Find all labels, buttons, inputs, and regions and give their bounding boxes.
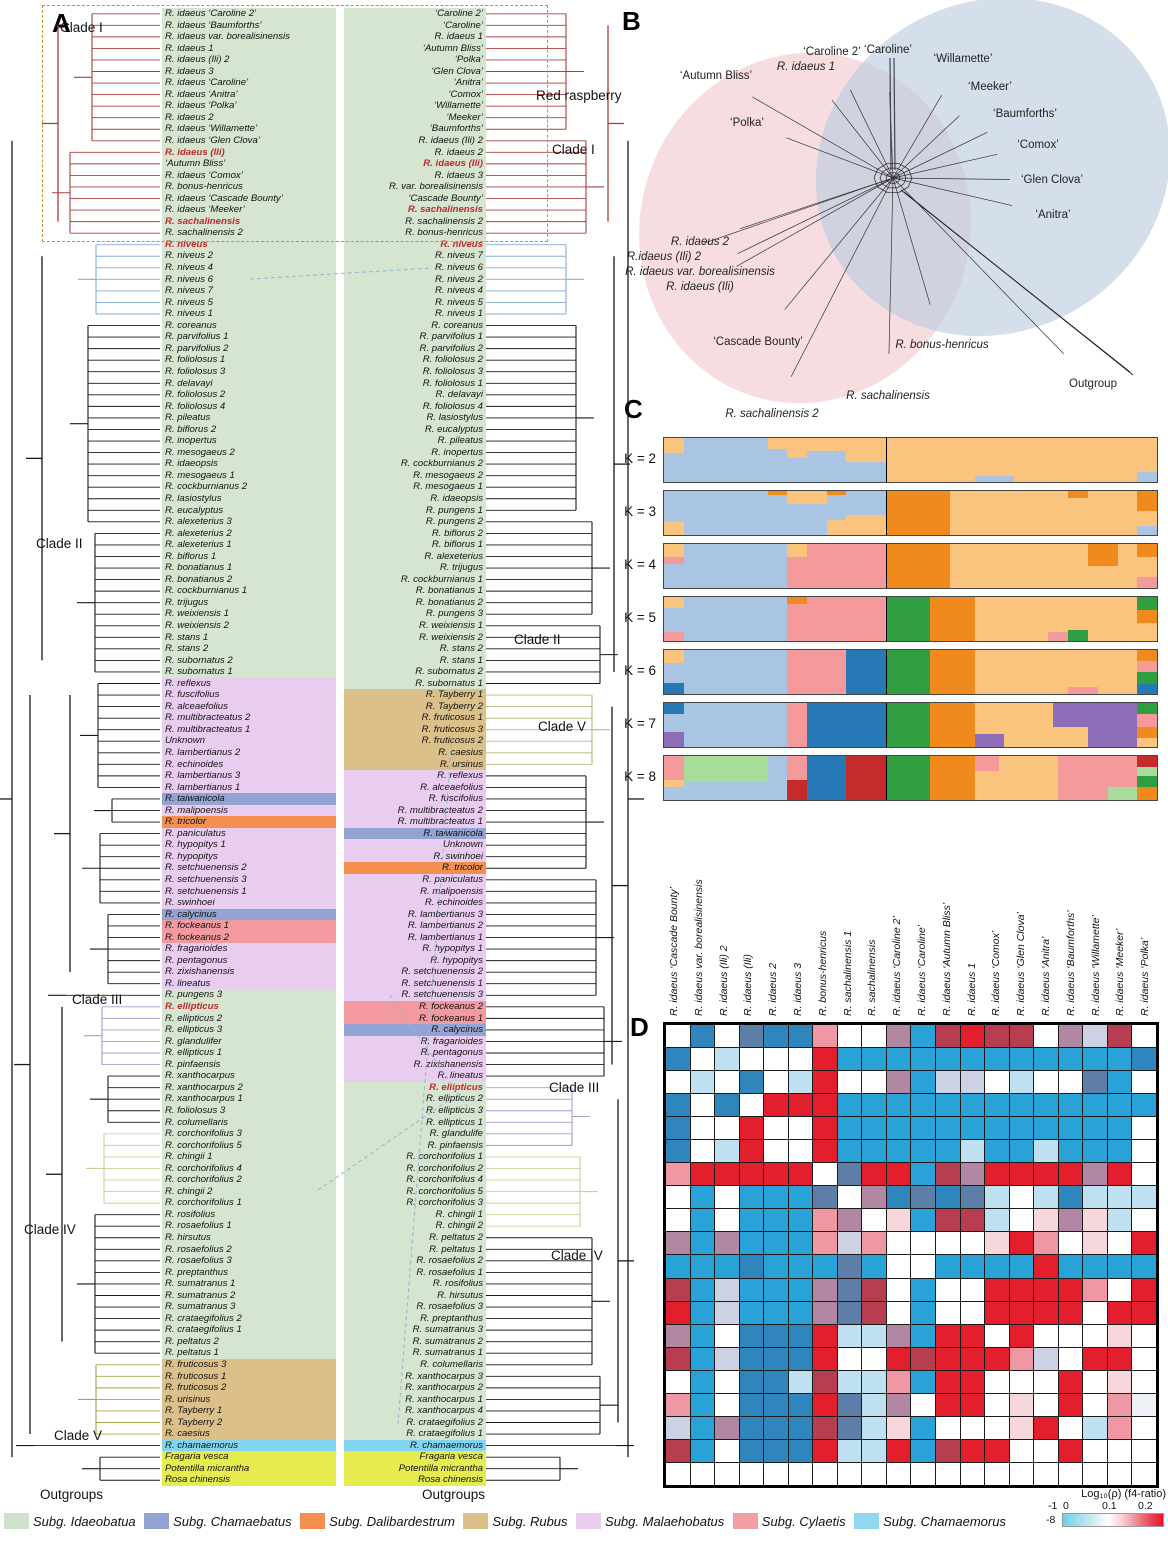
heatmap-cell bbox=[740, 1186, 764, 1208]
heatmap-cell bbox=[862, 1071, 886, 1093]
heatmap-cell bbox=[789, 1302, 813, 1324]
heatmap-cell bbox=[1083, 1048, 1107, 1070]
heatmap-cell bbox=[715, 1440, 739, 1462]
heatmap-cell bbox=[1108, 1255, 1132, 1277]
heatmap-cell bbox=[1034, 1025, 1058, 1047]
structure-segment bbox=[846, 491, 885, 535]
heatmap-cell bbox=[985, 1371, 1009, 1393]
heatmap-cell bbox=[1010, 1325, 1034, 1347]
heatmap-cell bbox=[936, 1348, 960, 1370]
heatmap-cell bbox=[1059, 1232, 1083, 1254]
f4-heatmap bbox=[663, 1022, 1159, 1488]
structure-segment bbox=[664, 544, 684, 588]
heatmap-cell bbox=[1059, 1209, 1083, 1231]
structure-segment bbox=[787, 703, 807, 747]
network-taxon-label: ‘Meeker’ bbox=[968, 81, 1012, 93]
heatmap-cell bbox=[887, 1348, 911, 1370]
structure-segment bbox=[886, 597, 930, 641]
heatmap-cell bbox=[740, 1232, 764, 1254]
heatmap-cell bbox=[1083, 1279, 1107, 1301]
heatmap-cell bbox=[691, 1279, 715, 1301]
heatmap-cell bbox=[1132, 1371, 1156, 1393]
heatmap-cell bbox=[911, 1048, 935, 1070]
heatmap-cell bbox=[1059, 1071, 1083, 1093]
heatmap-cell bbox=[862, 1163, 886, 1185]
heatmap-cell bbox=[1083, 1348, 1107, 1370]
k-label: K = 3 bbox=[604, 504, 656, 519]
heatmap-cell bbox=[789, 1163, 813, 1185]
heatmap-cell bbox=[1010, 1140, 1034, 1162]
heatmap-cell bbox=[961, 1302, 985, 1324]
heatmap-cell bbox=[838, 1371, 862, 1393]
heatmap-cell bbox=[1132, 1348, 1156, 1370]
legend-chip bbox=[300, 1513, 325, 1529]
heatmap-cell bbox=[985, 1463, 1009, 1485]
heatmap-cell bbox=[740, 1417, 764, 1439]
heatmap-cell bbox=[911, 1094, 935, 1116]
clade-label: Clade V bbox=[54, 1428, 102, 1443]
heatmap-cell bbox=[1132, 1302, 1156, 1324]
heatmap-cell bbox=[862, 1094, 886, 1116]
heatmap-cell bbox=[887, 1025, 911, 1047]
heatmap-cell bbox=[1059, 1186, 1083, 1208]
structure-row bbox=[663, 702, 1158, 748]
legend-label: Subg. Chamaemorus bbox=[883, 1514, 1006, 1529]
heatmap-cell bbox=[666, 1094, 690, 1116]
heatmap-cell bbox=[740, 1348, 764, 1370]
heatmap-cell bbox=[862, 1463, 886, 1485]
figure-root: A B C D R. idaeus ‘Caroline 2’R. idaeus … bbox=[0, 0, 1168, 1541]
heatmap-cell bbox=[887, 1394, 911, 1416]
clade-label: Clade II bbox=[514, 632, 561, 647]
heatmap-cell bbox=[1034, 1394, 1058, 1416]
heatmap-cell bbox=[1010, 1117, 1034, 1139]
heatmap-cell bbox=[887, 1094, 911, 1116]
column-label: R. idaeus ‘Baumforths’ bbox=[1065, 910, 1077, 1016]
heatmap-cell bbox=[764, 1048, 788, 1070]
group-divider bbox=[886, 597, 888, 641]
structure-segment bbox=[787, 597, 807, 641]
heatmap-cell bbox=[1083, 1025, 1107, 1047]
network-taxon-label: ‘Caroline 2’ bbox=[803, 46, 861, 58]
heatmap-cell bbox=[961, 1348, 985, 1370]
heatmap-cell bbox=[887, 1209, 911, 1231]
structure-segment bbox=[684, 438, 768, 482]
heatmap-cell bbox=[1108, 1348, 1132, 1370]
heatmap-cell bbox=[813, 1186, 837, 1208]
subgenus-legend: Subg. IdaeobatuaSubg. ChamaebatusSubg. D… bbox=[4, 1506, 1006, 1536]
structure-segment bbox=[768, 438, 788, 482]
heatmap-cell bbox=[1132, 1394, 1156, 1416]
column-label: R. idaeus ‘Anitra’ bbox=[1040, 937, 1052, 1016]
heatmap-cell bbox=[666, 1417, 690, 1439]
heatmap-cell bbox=[740, 1394, 764, 1416]
heatmap-cell bbox=[1132, 1440, 1156, 1462]
heatmap-cell bbox=[985, 1117, 1009, 1139]
heatmap-cell bbox=[715, 1094, 739, 1116]
heatmap-cell bbox=[961, 1140, 985, 1162]
structure-segment bbox=[787, 438, 807, 482]
heatmap-cell bbox=[1083, 1209, 1107, 1231]
structure-segment bbox=[1137, 597, 1157, 641]
structure-segment bbox=[827, 491, 847, 535]
heatmap-cell bbox=[838, 1094, 862, 1116]
heatmap-cell bbox=[1034, 1232, 1058, 1254]
heatmap-cell bbox=[838, 1302, 862, 1324]
group-divider bbox=[886, 703, 888, 747]
heatmap-cell bbox=[1034, 1117, 1058, 1139]
heatmap-cell bbox=[887, 1440, 911, 1462]
heatmap-cell bbox=[715, 1325, 739, 1347]
structure-row bbox=[663, 649, 1158, 695]
legend-item: Subg. Cylaetis bbox=[733, 1513, 846, 1529]
heatmap-cell bbox=[691, 1232, 715, 1254]
heatmap-cell bbox=[936, 1463, 960, 1485]
heatmap-cell bbox=[1010, 1209, 1034, 1231]
heatmap-cell bbox=[887, 1186, 911, 1208]
heatmap-cell bbox=[985, 1209, 1009, 1231]
heatmap-cell bbox=[911, 1232, 935, 1254]
column-label: R. idaeus (Ili) bbox=[742, 954, 754, 1016]
clade-label: Outgroups bbox=[422, 1487, 485, 1502]
heatmap-cell bbox=[1108, 1371, 1132, 1393]
structure-row bbox=[663, 543, 1158, 589]
heatmap-cell bbox=[862, 1025, 886, 1047]
heatmap-cell bbox=[1108, 1140, 1132, 1162]
heatmap-cell bbox=[1059, 1302, 1083, 1324]
legend-chip bbox=[576, 1513, 601, 1529]
heatmap-cell bbox=[838, 1279, 862, 1301]
structure-segment bbox=[1137, 650, 1157, 694]
legend-item: Subg. Chamaemorus bbox=[854, 1513, 1006, 1529]
heatmap-cell bbox=[1132, 1071, 1156, 1093]
structure-segment bbox=[664, 703, 684, 747]
heatmap-cell bbox=[838, 1163, 862, 1185]
heatmap-cell bbox=[838, 1025, 862, 1047]
heatmap-cell bbox=[691, 1440, 715, 1462]
structure-segment bbox=[684, 756, 768, 800]
heatmap-cell bbox=[691, 1255, 715, 1277]
heatmap-cell bbox=[691, 1071, 715, 1093]
heatmap-cell bbox=[1034, 1440, 1058, 1462]
column-label: R. bonus-henricus bbox=[817, 931, 829, 1016]
k-label: K = 8 bbox=[604, 769, 656, 784]
heatmap-cell bbox=[911, 1394, 935, 1416]
heatmap-cell bbox=[789, 1048, 813, 1070]
colorbar-tick-0: 0 bbox=[1063, 1500, 1069, 1512]
network-taxon-label: ‘Cascade Bounty’ bbox=[713, 336, 803, 348]
heatmap-cell bbox=[715, 1025, 739, 1047]
heatmap-cell bbox=[911, 1209, 935, 1231]
structure-segment bbox=[886, 544, 950, 588]
heatmap-cell bbox=[1132, 1325, 1156, 1347]
heatmap-cell bbox=[789, 1094, 813, 1116]
heatmap-cell bbox=[1083, 1232, 1107, 1254]
heatmap-cell bbox=[691, 1186, 715, 1208]
legend-chip bbox=[463, 1513, 488, 1529]
heatmap-cell bbox=[1132, 1163, 1156, 1185]
heatmap-cell bbox=[862, 1048, 886, 1070]
heatmap-cell bbox=[862, 1394, 886, 1416]
heatmap-cell bbox=[666, 1325, 690, 1347]
heatmap-cell bbox=[1059, 1325, 1083, 1347]
heatmap-cell bbox=[838, 1117, 862, 1139]
heatmap-cell bbox=[715, 1117, 739, 1139]
heatmap-cell bbox=[764, 1117, 788, 1139]
legend-label: Subg. Dalibardestrum bbox=[329, 1514, 455, 1529]
clade-label: Clade III bbox=[549, 1080, 599, 1095]
structure-segment bbox=[807, 544, 886, 588]
network-overlay bbox=[0, 0, 1168, 430]
column-label: R. idaeus 2 bbox=[767, 963, 779, 1016]
heatmap-cell bbox=[740, 1163, 764, 1185]
heatmap-cell bbox=[715, 1348, 739, 1370]
structure-segment bbox=[684, 703, 788, 747]
heatmap-cell bbox=[838, 1463, 862, 1485]
heatmap-cell bbox=[715, 1371, 739, 1393]
heatmap-cell bbox=[838, 1209, 862, 1231]
heatmap-cell bbox=[1059, 1440, 1083, 1462]
structure-segment bbox=[1068, 491, 1088, 535]
heatmap-cell bbox=[715, 1279, 739, 1301]
heatmap-cell bbox=[1132, 1232, 1156, 1254]
heatmap-cell bbox=[813, 1255, 837, 1277]
heatmap-cell bbox=[838, 1048, 862, 1070]
heatmap-cell bbox=[764, 1417, 788, 1439]
heatmap-cell bbox=[985, 1071, 1009, 1093]
heatmap-cell bbox=[985, 1232, 1009, 1254]
heatmap-cell bbox=[813, 1302, 837, 1324]
heatmap-cell bbox=[1010, 1394, 1034, 1416]
heatmap-cell bbox=[1108, 1279, 1132, 1301]
structure-segment bbox=[930, 703, 974, 747]
heatmap-cell bbox=[887, 1371, 911, 1393]
column-label: R. idaeus ‘Polka’ bbox=[1139, 938, 1151, 1016]
heatmap-cell bbox=[1083, 1440, 1107, 1462]
heatmap-cell bbox=[961, 1209, 985, 1231]
heatmap-cell bbox=[740, 1140, 764, 1162]
clade-label: Clade IV bbox=[551, 1248, 603, 1263]
heatmap-cell bbox=[1010, 1417, 1034, 1439]
column-label: R. idaeus ‘Autumn Bliss’ bbox=[941, 903, 953, 1016]
structure-segment bbox=[664, 650, 684, 694]
heatmap-cell bbox=[764, 1348, 788, 1370]
heatmap-cell bbox=[936, 1279, 960, 1301]
structure-segment bbox=[975, 650, 1069, 694]
heatmap-cell bbox=[838, 1232, 862, 1254]
heatmap-cell bbox=[789, 1348, 813, 1370]
structure-segment bbox=[1068, 650, 1098, 694]
heatmap-cell bbox=[936, 1048, 960, 1070]
heatmap-cell bbox=[911, 1071, 935, 1093]
clade-label: Clade IV bbox=[24, 1222, 76, 1237]
heatmap-cell bbox=[813, 1209, 837, 1231]
heatmap-cell bbox=[764, 1163, 788, 1185]
heatmap-cell bbox=[862, 1232, 886, 1254]
heatmap-cell bbox=[789, 1209, 813, 1231]
heatmap-cell bbox=[911, 1186, 935, 1208]
heatmap-cell bbox=[1034, 1302, 1058, 1324]
structure-segment bbox=[787, 491, 826, 535]
heatmap-cell bbox=[911, 1302, 935, 1324]
network-taxon-label: ‘Autumn Bliss’ bbox=[680, 70, 752, 82]
heatmap-cell bbox=[666, 1117, 690, 1139]
heatmap-cell bbox=[838, 1417, 862, 1439]
heatmap-cell bbox=[666, 1302, 690, 1324]
structure-segment bbox=[999, 756, 1058, 800]
k-label: K = 6 bbox=[604, 663, 656, 678]
structure-segment bbox=[1088, 491, 1137, 535]
network-taxon-label: R. bonus-henricus bbox=[895, 339, 988, 351]
heatmap-cell bbox=[1108, 1071, 1132, 1093]
heatmap-cell bbox=[789, 1440, 813, 1462]
heatmap-cell bbox=[1034, 1279, 1058, 1301]
structure-segment bbox=[807, 650, 846, 694]
column-label: R. idaeus (Ili) 2 bbox=[718, 945, 730, 1016]
heatmap-cell bbox=[1132, 1048, 1156, 1070]
column-label: R. idaeus 3 bbox=[792, 963, 804, 1016]
heatmap-cell bbox=[1083, 1117, 1107, 1139]
heatmap-cell bbox=[887, 1417, 911, 1439]
heatmap-cell bbox=[715, 1048, 739, 1070]
heatmap-cell bbox=[1059, 1417, 1083, 1439]
heatmap-cell bbox=[862, 1186, 886, 1208]
heatmap-cell bbox=[1083, 1371, 1107, 1393]
heatmap-cell bbox=[1034, 1140, 1058, 1162]
heatmap-cell bbox=[666, 1071, 690, 1093]
group-divider bbox=[886, 544, 888, 588]
heatmap-cell bbox=[740, 1440, 764, 1462]
heatmap-cell bbox=[887, 1279, 911, 1301]
heatmap-cell bbox=[715, 1302, 739, 1324]
structure-segment bbox=[1068, 597, 1088, 641]
heatmap-cell bbox=[1132, 1417, 1156, 1439]
heatmap-cell bbox=[691, 1417, 715, 1439]
heatmap-cell bbox=[764, 1371, 788, 1393]
heatmap-cell bbox=[691, 1325, 715, 1347]
heatmap-cell bbox=[1083, 1325, 1107, 1347]
heatmap-cell bbox=[961, 1071, 985, 1093]
heatmap-cell bbox=[666, 1463, 690, 1485]
heatmap-cell bbox=[862, 1209, 886, 1231]
heatmap-cell bbox=[813, 1140, 837, 1162]
heatmap-cell bbox=[887, 1232, 911, 1254]
heatmap-cell bbox=[740, 1255, 764, 1277]
legend-label: Subg. Idaeobatua bbox=[33, 1514, 136, 1529]
heatmap-cell bbox=[691, 1394, 715, 1416]
heatmap-cell bbox=[862, 1140, 886, 1162]
heatmap-cell bbox=[1059, 1394, 1083, 1416]
heatmap-cell bbox=[985, 1440, 1009, 1462]
heatmap-cell bbox=[813, 1417, 837, 1439]
heatmap-cell bbox=[813, 1025, 837, 1047]
heatmap-cell bbox=[1010, 1302, 1034, 1324]
heatmap-cell bbox=[1108, 1048, 1132, 1070]
heatmap-cell bbox=[887, 1255, 911, 1277]
structure-segment bbox=[664, 597, 684, 641]
heatmap-cell bbox=[715, 1232, 739, 1254]
heatmap-cell bbox=[764, 1440, 788, 1462]
heatmap-cell bbox=[813, 1279, 837, 1301]
group-divider bbox=[886, 756, 888, 800]
column-label: R. sachalinensis bbox=[866, 940, 878, 1016]
heatmap-cell bbox=[887, 1048, 911, 1070]
heatmap-cell bbox=[862, 1348, 886, 1370]
heatmap-cell bbox=[1010, 1071, 1034, 1093]
heatmap-cell bbox=[1083, 1394, 1107, 1416]
heatmap-cell bbox=[838, 1440, 862, 1462]
heatmap-cell bbox=[1108, 1232, 1132, 1254]
heatmap-cell bbox=[740, 1463, 764, 1485]
network-taxon-label: ‘Glen Clova’ bbox=[1021, 174, 1083, 186]
heatmap-cell bbox=[985, 1394, 1009, 1416]
structure-segment bbox=[886, 756, 930, 800]
heatmap-cell bbox=[740, 1117, 764, 1139]
heatmap-cell bbox=[1132, 1025, 1156, 1047]
heatmap-cell bbox=[740, 1279, 764, 1301]
heatmap-cell bbox=[887, 1140, 911, 1162]
heatmap-cell bbox=[936, 1209, 960, 1231]
heatmap-cell bbox=[1010, 1048, 1034, 1070]
heatmap-cell bbox=[936, 1025, 960, 1047]
heatmap-cell bbox=[764, 1071, 788, 1093]
heatmap-cell bbox=[936, 1186, 960, 1208]
heatmap-cell bbox=[1034, 1186, 1058, 1208]
structure-segment bbox=[787, 544, 807, 588]
legend-item: Subg. Dalibardestrum bbox=[300, 1513, 455, 1529]
network-taxon-label: R. idaeus (Ili) bbox=[666, 281, 734, 293]
structure-segment bbox=[975, 703, 1005, 747]
structure-segment bbox=[1137, 491, 1157, 535]
structure-row bbox=[663, 490, 1158, 536]
heatmap-cell bbox=[666, 1209, 690, 1231]
heatmap-cell bbox=[740, 1371, 764, 1393]
heatmap-cell bbox=[789, 1394, 813, 1416]
heatmap-cell bbox=[789, 1071, 813, 1093]
column-label: R. idaeus var. borealisinensis bbox=[693, 879, 705, 1016]
k-label: K = 4 bbox=[604, 557, 656, 572]
heatmap-cell bbox=[1083, 1140, 1107, 1162]
heatmap-cell bbox=[1010, 1348, 1034, 1370]
legend-item: Subg. Chamaebatus bbox=[144, 1513, 292, 1529]
heatmap-cell bbox=[764, 1094, 788, 1116]
heatmap-cell bbox=[936, 1325, 960, 1347]
heatmap-cell bbox=[887, 1325, 911, 1347]
heatmap-cell bbox=[911, 1279, 935, 1301]
heatmap-cell bbox=[666, 1186, 690, 1208]
structure-segment bbox=[807, 597, 886, 641]
structure-segment bbox=[1108, 756, 1138, 800]
structure-segment bbox=[684, 491, 768, 535]
heatmap-cell bbox=[961, 1394, 985, 1416]
heatmap-cell bbox=[691, 1371, 715, 1393]
structure-segment bbox=[1004, 703, 1053, 747]
heatmap-cell bbox=[1010, 1163, 1034, 1185]
heatmap-cell bbox=[1108, 1440, 1132, 1462]
heatmap-cell bbox=[1108, 1209, 1132, 1231]
heatmap-cell bbox=[666, 1232, 690, 1254]
heatmap-cell bbox=[813, 1117, 837, 1139]
heatmap-cell bbox=[961, 1279, 985, 1301]
column-label: R. idaeus ‘Comox’ bbox=[990, 931, 1002, 1016]
legend-label: Subg. Cylaetis bbox=[762, 1514, 846, 1529]
heatmap-cell bbox=[1059, 1025, 1083, 1047]
column-label: R. idaeus ‘Caroline 2’ bbox=[891, 916, 903, 1016]
heatmap-cell bbox=[911, 1325, 935, 1347]
colorbar-title: Log₁₀(ρ) (f4-ratio) bbox=[1040, 1488, 1166, 1500]
clade-label: Clade V bbox=[538, 719, 586, 734]
heatmap-cell bbox=[789, 1463, 813, 1485]
